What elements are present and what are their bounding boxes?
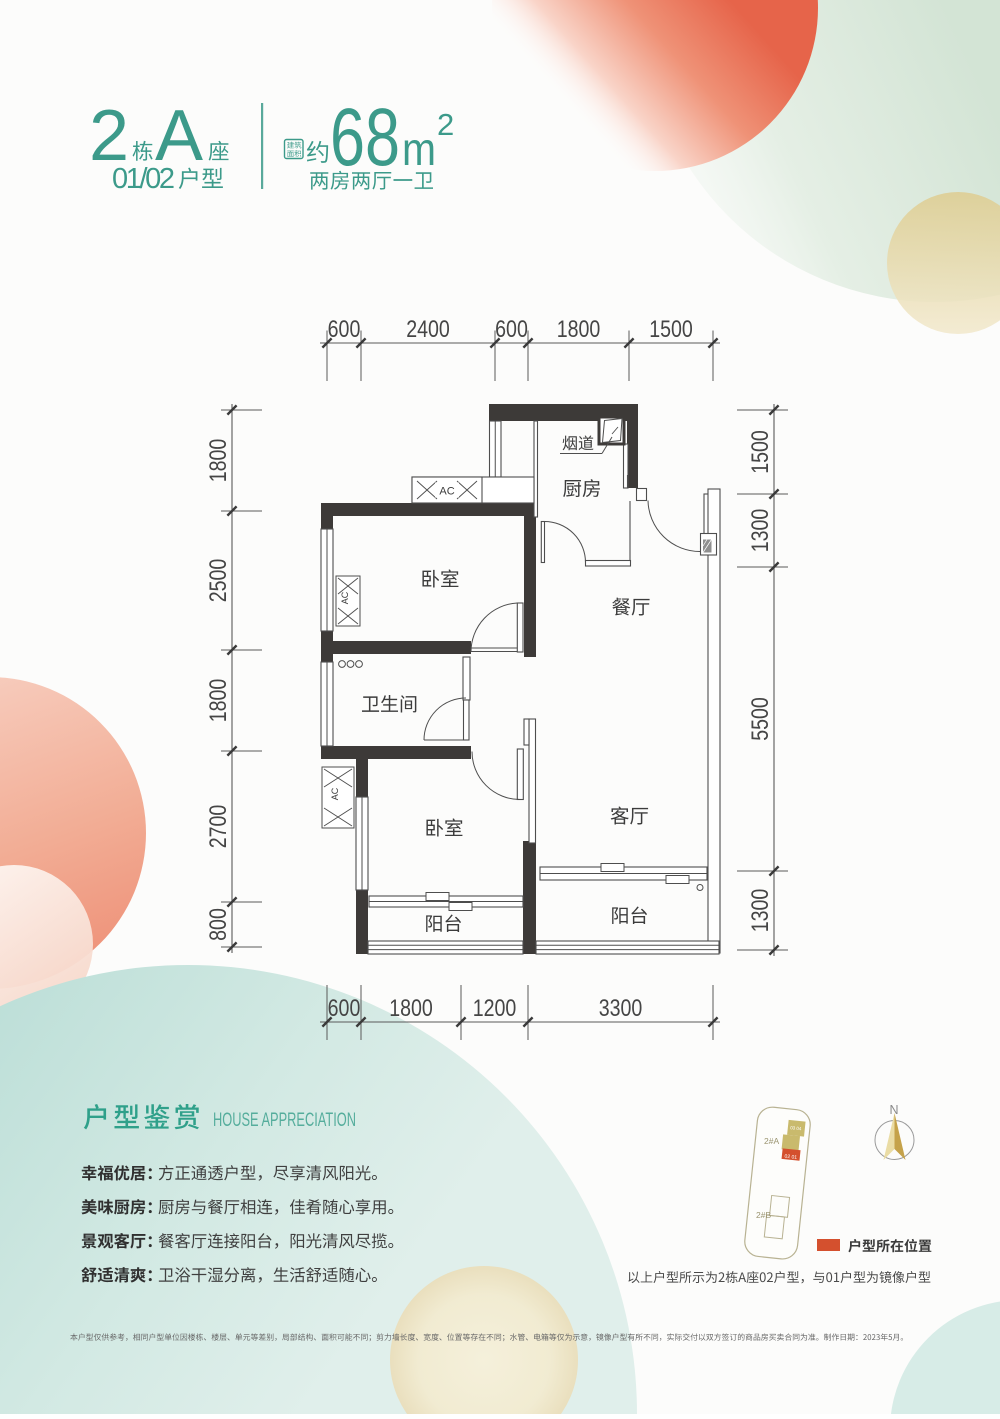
svg-text:AC: AC	[330, 787, 340, 800]
svg-text:1800: 1800	[389, 995, 433, 1022]
svg-text:1800: 1800	[557, 316, 601, 343]
svg-text:2500: 2500	[205, 559, 232, 603]
svg-text:2700: 2700	[205, 805, 232, 849]
svg-text:AC: AC	[439, 486, 454, 498]
svg-text:1800: 1800	[205, 439, 232, 483]
svg-text:600: 600	[328, 995, 361, 1022]
svg-text:600: 600	[495, 316, 528, 343]
svg-text:1800: 1800	[205, 679, 232, 723]
svg-text:N: N	[889, 1103, 898, 1117]
svg-text:1200: 1200	[473, 995, 517, 1022]
svg-text:1500: 1500	[649, 316, 693, 343]
svg-text:600: 600	[328, 316, 361, 343]
svg-text:800: 800	[205, 908, 232, 941]
svg-text:2#B: 2#B	[756, 1210, 771, 1220]
svg-text:3300: 3300	[599, 995, 643, 1022]
svg-text:01/02: 01/02	[112, 163, 175, 195]
svg-text:m: m	[402, 123, 436, 175]
svg-text:AC: AC	[340, 591, 350, 604]
svg-text:5500: 5500	[747, 697, 774, 741]
svg-text:1500: 1500	[747, 430, 774, 474]
svg-text:HOUSE APPRECIATION: HOUSE APPRECIATION	[213, 1110, 356, 1131]
svg-text:68: 68	[330, 92, 400, 183]
svg-text:2#A: 2#A	[764, 1136, 779, 1146]
svg-text:1300: 1300	[747, 509, 774, 553]
svg-text:2400: 2400	[406, 316, 450, 343]
svg-text:2: 2	[437, 107, 454, 142]
svg-text:1300: 1300	[747, 889, 774, 933]
